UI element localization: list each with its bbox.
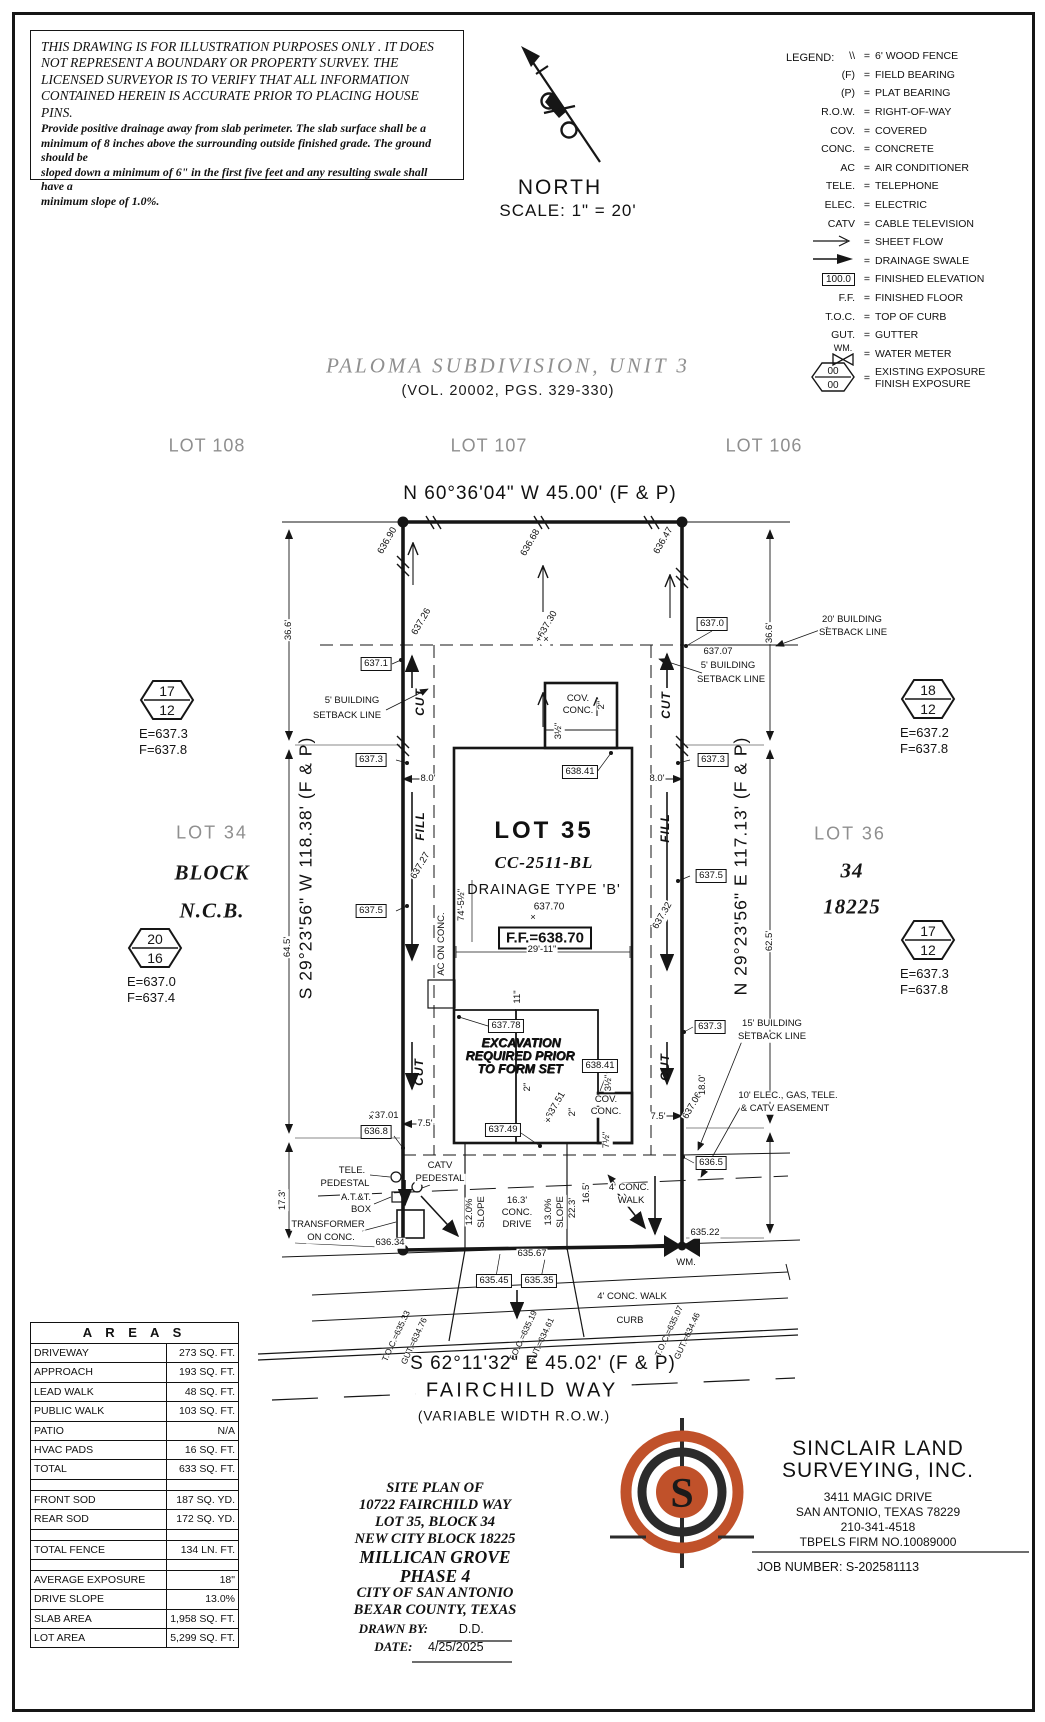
areas-row-label: HVAC PADS (31, 1441, 167, 1459)
legend-row: CONC.=CONCRETE (713, 140, 1025, 159)
plat-label: 636.34 (374, 1238, 405, 1249)
plat-label: 36.6' (765, 622, 776, 644)
title-block-line: BEXAR COUNTY, TEXAS (310, 1602, 560, 1619)
plat-label: EXCAVATION (480, 1036, 561, 1050)
finish-exposure-value: F=637.8 (900, 982, 956, 998)
legend-symbol: T.O.C. (713, 311, 859, 323)
plat-label: CUT (413, 687, 427, 717)
surveyor-address-line: TBPELS FIRM NO.10089000 (762, 1535, 994, 1550)
legend-description: 6' WOOD FENCE (875, 50, 1025, 62)
legend-symbol: \\ (713, 50, 859, 62)
plat-label: 636.5 (696, 1156, 727, 1170)
plat-label: 13.0% (544, 1198, 555, 1227)
areas-row-value: 172 SQ. YD. (167, 1510, 238, 1528)
plat-label: COV. (594, 1095, 618, 1106)
north-arrow (521, 46, 600, 162)
exposure-marker: 2016E=637.0F=637.4 (127, 927, 183, 1006)
areas-table: A R E A S DRIVEWAY273 SQ. FT.APPROACH193… (30, 1322, 239, 1648)
scale-label: SCALE: 1" = 20' (499, 201, 636, 221)
legend-description: ELECTRIC (875, 199, 1025, 211)
areas-row: PATION/A (31, 1422, 238, 1441)
plat-label: TRANSFORMER (290, 1220, 365, 1231)
exposure-icon: 0000 (811, 362, 855, 392)
plat-label: 16.3' (506, 1196, 528, 1207)
areas-table-title: A R E A S (31, 1323, 238, 1344)
legend-row: CATV=CABLE TELEVISION (713, 214, 1025, 233)
exposure-hexagon: 2016 (127, 927, 183, 969)
surveyor-address: 3411 MAGIC DRIVESAN ANTONIO, TEXAS 78229… (762, 1490, 994, 1550)
disclaimer-heading: THIS DRAWING IS FOR ILLUSTRATION PURPOSE… (41, 39, 453, 121)
sheet-flow-icon (811, 235, 855, 247)
street-name: FAIRCHILD WAY (416, 1380, 628, 1403)
plat-label: 36.6' (284, 619, 295, 641)
plat-label: 637.1 (361, 657, 392, 671)
legend-row: (F)=FIELD BEARING (713, 66, 1025, 85)
side-lot-ncb-num: 18225 (823, 895, 881, 920)
plat-label: TELE. (338, 1166, 366, 1177)
plat-label: × (529, 913, 537, 924)
bearing-west: S 29°23'56" W 118.38' (F & P) (296, 737, 317, 1000)
legend-row: \\=6' WOOD FENCE (713, 47, 1025, 66)
exposure-bottom: 12 (159, 702, 175, 718)
plat-label: 8.0' (648, 774, 665, 785)
plat-label: CONC. (501, 1208, 534, 1219)
lot35-drainage: DRAINAGE TYPE 'B' (467, 882, 621, 898)
plat-label: 2" (523, 1082, 534, 1093)
plat-label: WALK (617, 1196, 646, 1207)
plat-label: 637.07 (702, 647, 733, 658)
drawn-by-label: DRAWN BY: (359, 1621, 428, 1636)
plat-label: 7.5' (416, 1119, 433, 1130)
plat-label: 635.35 (521, 1274, 557, 1288)
plat-label: A.T.&T. (340, 1193, 372, 1204)
plat-label: 4' CONC. WALK (596, 1292, 668, 1303)
legend-equals: = (859, 180, 875, 192)
areas-row-value: 1,958 SQ. FT. (167, 1610, 238, 1628)
legend-equals: = (859, 348, 875, 360)
plat-label: SLOPE (477, 1195, 488, 1229)
areas-row-label: APPROACH (31, 1363, 167, 1381)
plat-label: PEDESTAL (320, 1179, 371, 1190)
legend-equals: = (859, 372, 875, 384)
areas-row (31, 1530, 238, 1541)
plat-label: & CATV EASEMENT (740, 1104, 831, 1115)
finished-elevation-icon: 100.0 (822, 273, 855, 286)
plat-label: 2" (568, 1107, 579, 1118)
exposure-marker: 1712E=637.3F=637.8 (900, 919, 956, 998)
plat-label: CURB (616, 1316, 645, 1327)
legend-row: T.O.C.=TOP OF CURB (713, 307, 1025, 326)
plat-label: 635.45 (476, 1274, 512, 1288)
areas-row: AVERAGE EXPOSURE18" (31, 1571, 238, 1590)
plat-label: SETBACK LINE (696, 675, 766, 686)
areas-row-value: 48 SQ. FT. (167, 1383, 238, 1401)
areas-row-value: N/A (167, 1422, 238, 1440)
plat-label: 64.5' (283, 936, 294, 958)
finish-exposure-value: F=637.8 (139, 742, 195, 758)
date-label: DATE: (374, 1639, 412, 1654)
areas-row-label: LOT AREA (31, 1629, 167, 1647)
plat-label: PEDESTAL (415, 1174, 466, 1185)
plat-label: CATV (427, 1161, 454, 1172)
plat-label: 635.22 (689, 1228, 720, 1239)
plat-label: × (542, 635, 550, 646)
areas-row: LOT AREA5,299 SQ. FT. (31, 1629, 238, 1647)
areas-row-value: 16 SQ. FT. (167, 1441, 238, 1459)
plat-label: 5' BUILDING (700, 661, 757, 672)
plat-label: REQUIRED PRIOR (464, 1049, 575, 1063)
subdivision-title: PALOMA SUBDIVISION, UNIT 3 (326, 354, 690, 379)
areas-row-value: 13.0% (167, 1590, 238, 1608)
plat-label: 62.5' (765, 930, 776, 952)
plat-label: 11" (513, 989, 524, 1004)
legend-symbol: CATV (713, 218, 859, 230)
legend-description: DRAINAGE SWALE (875, 255, 1025, 267)
plat-label: TO FORM SET (476, 1062, 563, 1076)
adjacent-lot-107: LOT 107 (451, 436, 528, 457)
areas-row-label (31, 1480, 167, 1490)
plat-label: FILL (413, 810, 427, 841)
title-block-line: 10722 FAIRCHILD WAY (310, 1497, 560, 1514)
legend-symbol: (P) (713, 87, 859, 99)
plat-label: 18.0' (698, 1074, 709, 1096)
legend-description: SHEET FLOW (875, 236, 1025, 248)
legend-description: FINISHED ELEVATION (875, 273, 1025, 285)
existing-exposure-value: E=637.2 (900, 725, 956, 741)
finish-exposure-value: F=637.8 (900, 741, 956, 757)
surveyor-address-line: 210-341-4518 (762, 1520, 994, 1535)
plat-label: 635.67 (516, 1249, 547, 1260)
plat-label: 637.3 (356, 753, 387, 767)
plat-label: AC ON CONC. (437, 911, 448, 976)
areas-row-value: 187 SQ. YD. (167, 1491, 238, 1509)
plat-label: 637.5 (356, 904, 387, 918)
plat-label: SETBACK LINE (818, 628, 888, 639)
surveyor-name-1: SINCLAIR LAND (792, 1437, 964, 1461)
legend-description: PLAT BEARING (875, 87, 1025, 99)
exposure-marker: 1712E=637.3F=637.8 (139, 679, 195, 758)
plat-label: CUT (658, 1052, 672, 1082)
plat-label: 74'-5½" (457, 888, 468, 922)
title-block-line: LOT 35, BLOCK 34 (310, 1514, 560, 1531)
areas-row: DRIVEWAY273 SQ. FT. (31, 1344, 238, 1363)
legend-symbol: 0000 (713, 362, 859, 395)
plat-label: 16.5' (582, 1182, 593, 1204)
disclaimer-body: Provide positive drainage away from slab… (41, 121, 453, 209)
areas-row: DRIVE SLOPE13.0% (31, 1590, 238, 1609)
plat-label: 2" (597, 700, 608, 711)
plat-label: 636.8 (361, 1125, 392, 1139)
legend-equals: = (859, 273, 875, 285)
areas-row: LEAD WALK48 SQ. FT. (31, 1383, 238, 1402)
areas-row-value: 273 SQ. FT. (167, 1344, 238, 1362)
svg-text:00: 00 (827, 380, 839, 391)
areas-row-label: FRONT SOD (31, 1491, 167, 1509)
legend-description: RIGHT-OF-WAY (875, 106, 1025, 118)
exposure-hexagon: 1712 (900, 919, 956, 961)
drainage-arrows (405, 654, 667, 1318)
areas-row: PUBLIC WALK103 SQ. FT. (31, 1402, 238, 1421)
surveyor-address-line: 3411 MAGIC DRIVE (762, 1490, 994, 1505)
drawn-by-value: D.D. (431, 1622, 511, 1637)
legend-description: CONCRETE (875, 143, 1025, 155)
lot35-name: LOT 35 (494, 817, 593, 845)
legend-row: F.F.=FINISHED FLOOR (713, 289, 1025, 308)
legend-row: (P)=PLAT BEARING (713, 84, 1025, 103)
plat-label: SETBACK LINE (312, 711, 382, 722)
areas-row (31, 1480, 238, 1491)
areas-row-label: LEAD WALK (31, 1383, 167, 1401)
plat-label: 3½" (604, 1074, 615, 1093)
side-lot-34: LOT 34 (176, 823, 248, 844)
side-lot-block-num: 34 (841, 859, 864, 884)
plat-label: 3½" (554, 722, 565, 741)
legend-equals: = (859, 50, 875, 62)
plat-label: 637.49 (485, 1123, 521, 1137)
plat-label: SLOPE (556, 1195, 567, 1229)
plat-label: 638.41 (582, 1059, 618, 1073)
plat-label: 4' CONC. (608, 1183, 650, 1194)
areas-row: TOTAL FENCE134 LN. FT. (31, 1541, 238, 1560)
side-lot-36: LOT 36 (814, 824, 886, 845)
areas-row-value (167, 1480, 238, 1490)
title-block-lines: SITE PLAN OF10722 FAIRCHILD WAYLOT 35, B… (310, 1480, 560, 1619)
title-block-line: MILLICAN GROVE (310, 1548, 560, 1567)
legend-row: 100.0=FINISHED ELEVATION (713, 270, 1025, 289)
areas-row-value (167, 1560, 238, 1570)
legend: \\=6' WOOD FENCE(F)=FIELD BEARING(P)=PLA… (713, 47, 1025, 393)
legend-row: AC=AIR CONDITIONER (713, 159, 1025, 178)
plat-label: CONC. (590, 1107, 623, 1118)
surveyor-name-2: SURVEYING, INC. (782, 1459, 974, 1483)
plat-label: SETBACK LINE (737, 1032, 807, 1043)
exposure-top: 17 (920, 923, 936, 939)
areas-row-label: SLAB AREA (31, 1610, 167, 1628)
areas-row: TOTAL633 SQ. FT. (31, 1460, 238, 1479)
areas-row-value: 193 SQ. FT. (167, 1363, 238, 1381)
exposure-marker: 1812E=637.2F=637.8 (900, 678, 956, 757)
areas-row-label (31, 1560, 167, 1570)
legend-description: WATER METER (875, 348, 1025, 360)
plat-label: CONC. (562, 706, 595, 717)
title-block-line: PHASE 4 (310, 1567, 560, 1586)
legend-row: COV.=COVERED (713, 121, 1025, 140)
surveyor-address-line: SAN ANTONIO, TEXAS 78229 (762, 1505, 994, 1520)
exposure-bottom: 16 (147, 950, 163, 966)
legend-row: TELE.=TELEPHONE (713, 177, 1025, 196)
existing-exposure-value: E=637.0 (127, 974, 183, 990)
areas-row: HVAC PADS16 SQ. FT. (31, 1441, 238, 1460)
areas-row-label: DRIVE SLOPE (31, 1590, 167, 1608)
areas-row-value: 134 LN. FT. (167, 1541, 238, 1559)
legend-row: 0000=EXISTING EXPOSUREFINISH EXPOSURE (713, 363, 1025, 393)
legend-description: TELEPHONE (875, 180, 1025, 192)
areas-row: APPROACH193 SQ. FT. (31, 1363, 238, 1382)
legend-row: R.O.W.=RIGHT-OF-WAY (713, 103, 1025, 122)
plat-label: 17.3' (278, 1189, 289, 1211)
legend-equals: = (859, 162, 875, 174)
existing-exposure-value: E=637.3 (900, 966, 956, 982)
plat-label: CUT (659, 690, 673, 720)
areas-row: REAR SOD172 SQ. YD. (31, 1510, 238, 1529)
areas-row-label: DRIVEWAY (31, 1344, 167, 1362)
plat-label: 22.3' (568, 1197, 579, 1219)
plat-label: BOX (350, 1205, 372, 1216)
areas-row-label: AVERAGE EXPOSURE (31, 1571, 167, 1589)
exposure-bottom: 12 (920, 701, 936, 717)
legend-symbol: TELE. (713, 180, 859, 192)
legend-description: TOP OF CURB (875, 311, 1025, 323)
areas-row-label: PATIO (31, 1422, 167, 1440)
adjacent-lot-108: LOT 108 (169, 436, 246, 457)
disclaimer-note: THIS DRAWING IS FOR ILLUSTRATION PURPOSE… (30, 30, 464, 180)
plat-label: 12.0% (465, 1198, 476, 1227)
legend-equals: = (859, 69, 875, 81)
legend-description: EXISTING EXPOSUREFINISH EXPOSURE (875, 366, 1025, 390)
plat-label: 29'-11" (527, 945, 558, 956)
legend-symbol: GUT. (713, 329, 859, 341)
bearing-north: N 60°36'04" W 45.00' (F & P) (398, 483, 681, 505)
areas-row-value: 5,299 SQ. FT. (167, 1629, 238, 1647)
plat-label: × (544, 1116, 552, 1127)
legend-equals: = (859, 218, 875, 230)
plat-label: CUT (412, 1057, 426, 1087)
legend-symbol: AC (713, 162, 859, 174)
areas-row-label (31, 1530, 167, 1540)
legend-equals: = (859, 106, 875, 118)
finish-exposure-value: F=637.4 (127, 990, 183, 1006)
plat-label: 10' ELEC., GAS, TELE. (737, 1091, 838, 1102)
plat-label: 637.3 (695, 1020, 726, 1034)
plat-label: 15' BUILDING (741, 1019, 803, 1030)
plat-label: 8.0' (419, 774, 436, 785)
side-lot-block: BLOCK (174, 861, 249, 886)
north-label: NORTH (518, 176, 602, 200)
areas-table-body: DRIVEWAY273 SQ. FT.APPROACH193 SQ. FT.LE… (31, 1344, 238, 1647)
legend-description: CABLE TELEVISION (875, 218, 1025, 230)
legend-equals: = (859, 311, 875, 323)
title-block-line: NEW CITY BLOCK 18225 (310, 1531, 560, 1548)
legend-symbol: R.O.W. (713, 106, 859, 118)
adjacent-lot-106: LOT 106 (726, 436, 803, 457)
exposure-hexagon: 1812 (900, 678, 956, 720)
legend-row: WM.=WATER METER (713, 345, 1025, 364)
areas-row-value: 633 SQ. FT. (167, 1460, 238, 1478)
areas-row-value: 18" (167, 1571, 238, 1589)
exposure-top: 17 (159, 683, 175, 699)
legend-equals: = (859, 329, 875, 341)
date-row: DATE: 4/25/2025 (310, 1639, 560, 1655)
areas-row (31, 1560, 238, 1571)
site-plan-page: S THIS DRAWING IS FOR ILLUSTRATION PURPO… (0, 0, 1045, 1722)
svg-text:00: 00 (827, 366, 839, 377)
areas-row-value (167, 1530, 238, 1540)
areas-row: FRONT SOD187 SQ. YD. (31, 1491, 238, 1510)
street-row: (VARIABLE WIDTH R.O.W.) (412, 1409, 616, 1424)
plat-label: 20' BUILDING (821, 615, 883, 626)
legend-symbol: CONC. (713, 143, 859, 155)
areas-row-label: TOTAL (31, 1460, 167, 1478)
title-block: SITE PLAN OF10722 FAIRCHILD WAYLOT 35, B… (310, 1480, 560, 1655)
legend-equals: = (859, 125, 875, 137)
plat-label: 637.3 (698, 753, 729, 767)
legend-row: =SHEET FLOW (713, 233, 1025, 252)
legend-symbol: 100.0 (713, 273, 859, 285)
plat-label: FILL (658, 812, 672, 843)
legend-symbol: ELEC. (713, 199, 859, 211)
areas-row-label: TOTAL FENCE (31, 1541, 167, 1559)
subdivision-volume: (VOL. 20002, PGS. 329-330) (402, 383, 615, 399)
legend-equals: = (859, 292, 875, 304)
legend-equals: = (859, 255, 875, 267)
exposure-bottom: 12 (920, 942, 936, 958)
exposure-top: 20 (147, 931, 163, 947)
bearing-south: S 62°11'32" E 45.02' (F & P) (405, 1353, 681, 1375)
bearing-east: N 29°23'56" E 117.13' (F & P) (731, 737, 752, 996)
plat-label: COV. (566, 694, 590, 705)
legend-symbol (713, 235, 859, 250)
legend-row: =DRAINAGE SWALE (713, 252, 1025, 271)
areas-row: SLAB AREA1,958 SQ. FT. (31, 1610, 238, 1629)
legend-description: GUTTER (875, 329, 1025, 341)
lot35-spot-elevation: 637.70 (534, 902, 565, 913)
plat-label: 7.5' (649, 1112, 666, 1123)
plat-label: 7½" (602, 1131, 613, 1150)
legend-symbol: F.F. (713, 292, 859, 304)
legend-equals: = (859, 199, 875, 211)
legend-symbol: COV. (713, 125, 859, 137)
plat-label: × (367, 1113, 375, 1124)
svg-text:S: S (670, 1471, 693, 1517)
title-block-line: SITE PLAN OF (310, 1480, 560, 1497)
date-value: 4/25/2025 (416, 1640, 496, 1655)
legend-equals: = (859, 143, 875, 155)
legend-description: FIELD BEARING (875, 69, 1025, 81)
plat-label: 637.5 (696, 869, 727, 883)
plat-label: DRIVE (501, 1220, 532, 1231)
legend-symbol: (F) (713, 69, 859, 81)
areas-row-label: REAR SOD (31, 1510, 167, 1528)
legend-symbol (713, 253, 859, 268)
plat-label: 638.41 (562, 765, 598, 779)
legend-description: AIR CONDITIONER (875, 162, 1025, 174)
legend-description: FINISHED FLOOR (875, 292, 1025, 304)
exposure-hexagon: 1712 (139, 679, 195, 721)
legend-equals: = (859, 87, 875, 99)
lot35-code: CC-2511-BL (495, 853, 594, 873)
areas-row-label: PUBLIC WALK (31, 1402, 167, 1420)
plat-label: 637.0 (697, 617, 728, 631)
legend-description: COVERED (875, 125, 1025, 137)
legend-row: ELEC.=ELECTRIC (713, 196, 1025, 215)
existing-exposure-value: E=637.3 (139, 726, 195, 742)
title-block-line: CITY OF SAN ANTONIO (310, 1585, 560, 1602)
plat-label: WM. (675, 1258, 697, 1269)
exposure-top: 18 (920, 682, 936, 698)
drawn-by-row: DRAWN BY: D.D. (310, 1621, 560, 1637)
surveyor-job-number: JOB NUMBER: S-202581113 (757, 1560, 919, 1574)
surveyor-logo: S (610, 1418, 754, 1568)
areas-row-value: 103 SQ. FT. (167, 1402, 238, 1420)
plat-label: 5' BUILDING (324, 696, 381, 707)
drainage-swale-icon (811, 253, 855, 265)
side-lot-ncb: N.C.B. (180, 899, 245, 924)
legend-equals: = (859, 236, 875, 248)
plat-label: ON CONC. (306, 1233, 356, 1244)
plat-label: 637.78 (488, 1019, 524, 1033)
